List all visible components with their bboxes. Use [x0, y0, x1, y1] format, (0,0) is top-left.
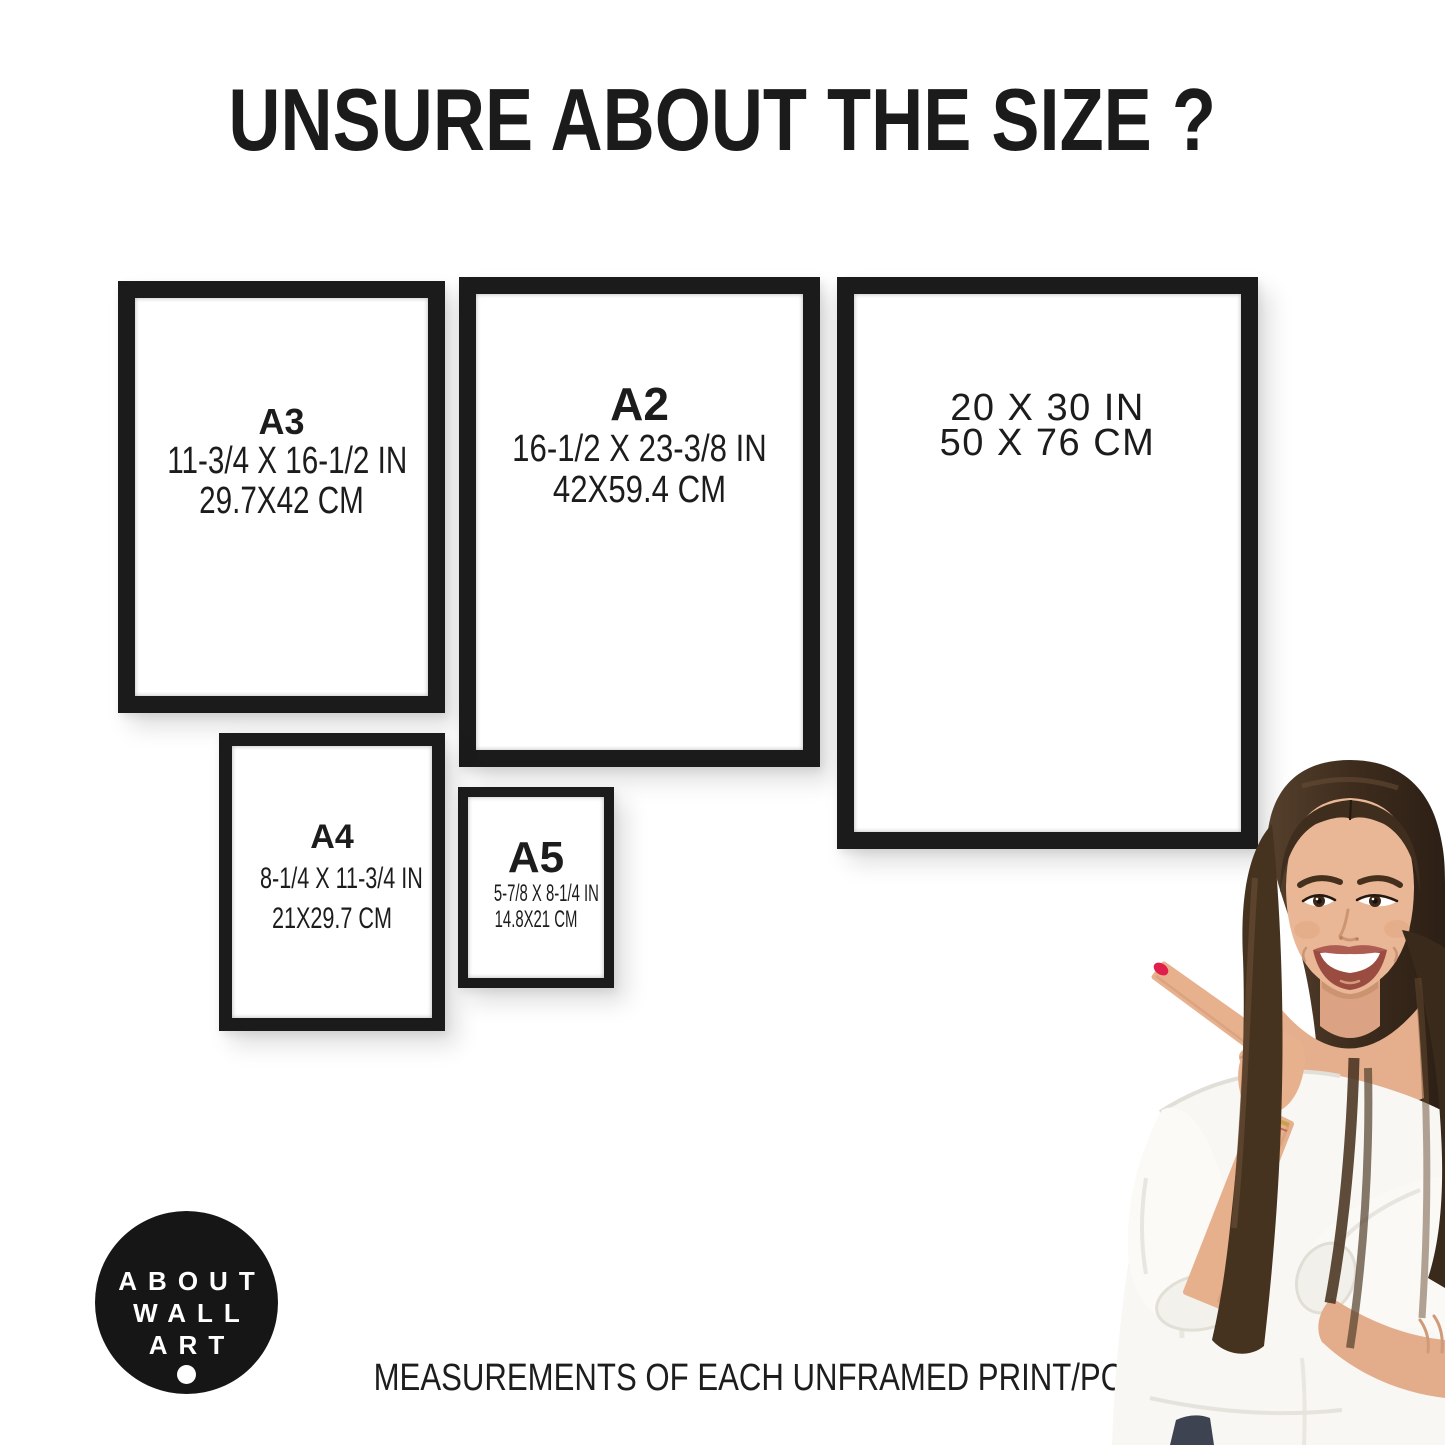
size-label: A5 — [508, 835, 564, 881]
size-guide-image: UNSURE ABOUT THE SIZE ? A3 11-3/4 X 16-1… — [0, 0, 1445, 1445]
size-frame-a3-mat: A3 11-3/4 X 16-1/2 IN 29.7X42 CM — [135, 298, 428, 696]
size-frame-a2-mat: A2 16-1/2 X 23-3/8 IN 42X59.4 CM — [476, 294, 803, 750]
size-frame-a2: A2 16-1/2 X 23-3/8 IN 42X59.4 CM — [459, 277, 820, 767]
pointing-woman-photo — [950, 758, 1445, 1445]
size-inches: 8-1/4 X 11-3/4 IN — [260, 859, 404, 899]
size-cm: 14.8X21 CM — [494, 907, 578, 933]
size-cm: 21X29.7 CM — [260, 899, 404, 939]
size-label: A3 — [258, 402, 304, 441]
size-frame-a4: A4 8-1/4 X 11-3/4 IN 21X29.7 CM — [219, 733, 445, 1031]
size-frame-20x30-mat: 20 X 30 IN 50 X 76 CM — [854, 294, 1241, 832]
page-title: UNSURE ABOUT THE SIZE ? — [0, 76, 1445, 164]
size-cm: 29.7X42 CM — [167, 481, 396, 521]
page-title-text: UNSURE ABOUT THE SIZE ? — [229, 76, 1217, 164]
logo-line: ABOUT — [118, 1265, 265, 1297]
logo-line: WALL — [133, 1297, 251, 1329]
size-inches: 16-1/2 X 23-3/8 IN — [505, 429, 773, 470]
size-frame-a4-mat: A4 8-1/4 X 11-3/4 IN 21X29.7 CM — [232, 746, 432, 1018]
about-wall-art-logo: ABOUT WALL ART — [95, 1211, 278, 1394]
size-label: A2 — [610, 379, 669, 429]
size-frame-a5: A5 5-7/8 X 8-1/4 IN 14.8X21 CM — [458, 787, 614, 988]
size-cm: 42X59.4 CM — [505, 470, 773, 511]
size-inches: 11-3/4 X 16-1/2 IN — [167, 441, 396, 481]
size-frame-a3: A3 11-3/4 X 16-1/2 IN 29.7X42 CM — [118, 281, 445, 713]
size-inches: 5-7/8 X 8-1/4 IN — [494, 881, 578, 907]
size-inches: 20 X 30 IN — [854, 391, 1241, 426]
logo-line: ART — [149, 1329, 235, 1361]
size-cm: 50 X 76 CM — [854, 426, 1241, 461]
logo-dot-icon — [177, 1365, 196, 1384]
caption: MEASUREMENTS OF EACH UNFRAMED PRINT/POST… — [282, 1356, 1042, 1400]
size-label: A4 — [310, 816, 353, 859]
size-frame-a5-mat: A5 5-7/8 X 8-1/4 IN 14.8X21 CM — [468, 797, 604, 978]
